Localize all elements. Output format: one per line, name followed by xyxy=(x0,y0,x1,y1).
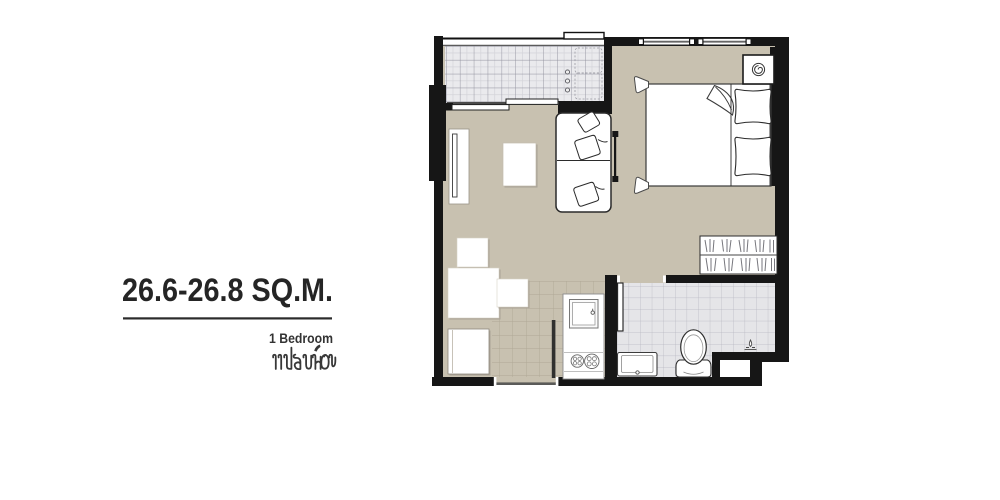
svg-text:1 Bedroom: 1 Bedroom xyxy=(269,331,333,346)
svg-text:26.6-26.8 SQ.M.: 26.6-26.8 SQ.M. xyxy=(122,272,333,308)
